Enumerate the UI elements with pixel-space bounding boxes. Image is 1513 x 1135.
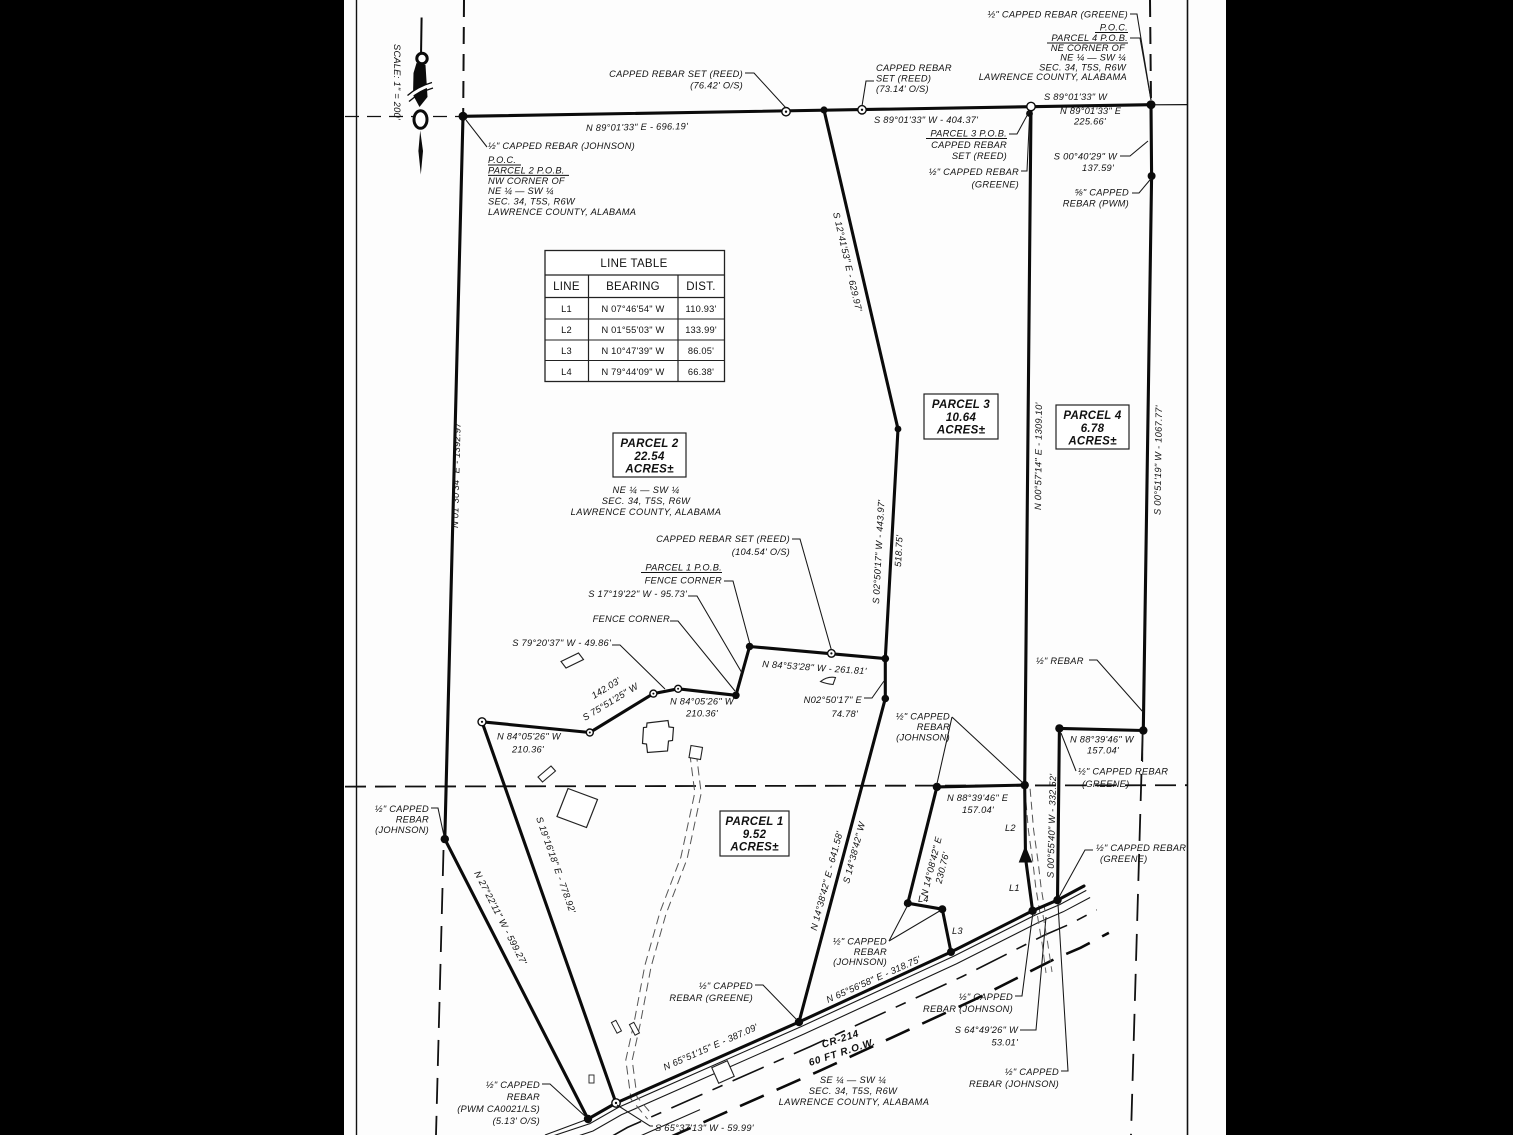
svg-text:½" CAPPED: ½" CAPPED [833,937,887,947]
svg-text:N 89°01'33" E: N 89°01'33" E [1060,106,1122,116]
svg-text:(GREENE): (GREENE) [1082,779,1129,789]
svg-text:137.59': 137.59' [1082,163,1115,173]
svg-text:CAPPED REBAR: CAPPED REBAR [931,140,1007,150]
svg-text:NE ¼ — SW ¼: NE ¼ — SW ¼ [488,186,554,196]
svg-text:½" CAPPED REBAR: ½" CAPPED REBAR [929,167,1019,177]
svg-text:10.64: 10.64 [946,412,977,424]
svg-text:DIST.: DIST. [686,281,716,293]
svg-text:CAPPED REBAR SET (REED): CAPPED REBAR SET (REED) [609,69,743,79]
svg-text:PARCEL 2: PARCEL 2 [620,438,679,450]
svg-text:157.04': 157.04' [1087,746,1120,756]
svg-text:½" CAPPED: ½" CAPPED [896,712,950,722]
svg-text:REBAR (JOHNSON): REBAR (JOHNSON) [969,1079,1059,1089]
svg-text:225.66': 225.66' [1073,117,1107,127]
svg-text:PARCEL 4: PARCEL 4 [1063,410,1122,422]
svg-text:(5.13' O/S): (5.13' O/S) [493,1116,540,1126]
svg-text:½" CAPPED: ½" CAPPED [699,981,753,991]
svg-text:L3: L3 [561,346,572,356]
svg-text:LAWRENCE COUNTY, ALABAMA: LAWRENCE COUNTY, ALABAMA [979,72,1127,82]
svg-text:S 79°20'37" W - 49.86': S 79°20'37" W - 49.86' [512,638,612,648]
svg-text:66.38': 66.38' [688,367,714,377]
svg-text:L2: L2 [561,325,572,335]
svg-text:REBAR: REBAR [917,722,950,732]
svg-text:86.05': 86.05' [688,346,714,356]
svg-text:N 88°39'46" W: N 88°39'46" W [1070,735,1135,745]
svg-text:(73.14' O/S): (73.14' O/S) [876,84,929,94]
svg-text:(PWM CA0021/LS): (PWM CA0021/LS) [457,1104,540,1114]
svg-text:LAWRENCE COUNTY, ALABAMA: LAWRENCE COUNTY, ALABAMA [488,207,636,217]
svg-text:REBAR (JOHNSON): REBAR (JOHNSON) [923,1004,1013,1014]
svg-text:N 88°39'46" E: N 88°39'46" E [947,793,1009,803]
svg-text:REBAR: REBAR [396,815,429,825]
svg-text:L3: L3 [952,926,963,936]
svg-text:NE CORNER OF: NE CORNER OF [1051,43,1126,53]
svg-text:(JOHNSON): (JOHNSON) [375,825,429,835]
svg-text:PARCEL 3 P.O.B.: PARCEL 3 P.O.B. [930,129,1007,139]
svg-text:(GREENE): (GREENE) [1100,854,1147,864]
svg-text:53.01': 53.01' [991,1038,1019,1048]
svg-text:133.99': 133.99' [685,325,717,335]
svg-text:S 65°37'13" W - 59.99': S 65°37'13" W - 59.99' [655,1123,755,1133]
svg-text:L1: L1 [561,304,572,314]
svg-text:PARCEL 2 P.O.B.: PARCEL 2 P.O.B. [488,165,565,175]
svg-text:CAPPED REBAR SET (REED): CAPPED REBAR SET (REED) [656,534,790,544]
svg-text:110.93': 110.93' [686,304,717,314]
svg-text:REBAR: REBAR [507,1092,540,1102]
svg-text:N 00°57'14" E - 1309.10': N 00°57'14" E - 1309.10' [1033,401,1044,510]
svg-text:PARCEL 1 P.O.B.: PARCEL 1 P.O.B. [645,563,722,573]
svg-text:½" CAPPED: ½" CAPPED [375,804,429,814]
svg-text:N 10°47'39" W: N 10°47'39" W [601,346,664,356]
svg-text:ACRES±: ACRES± [624,464,674,476]
svg-text:S 89°01'33" W: S 89°01'33" W [1044,92,1108,102]
svg-text:½" CAPPED: ½" CAPPED [1005,1067,1059,1077]
svg-text:NW CORNER OF: NW CORNER OF [488,176,566,186]
svg-text:PARCEL 4 P.O.B.: PARCEL 4 P.O.B. [1051,33,1128,43]
svg-text:SEC. 34, T5S, R6W: SEC. 34, T5S, R6W [809,1086,898,1096]
svg-text:N 89°01'33" E - 696.19': N 89°01'33" E - 696.19' [586,121,689,133]
svg-text:SET (REED): SET (REED) [952,151,1007,161]
svg-text:LINE: LINE [553,281,580,293]
svg-text:S 00°51'19" W - 1067.77': S 00°51'19" W - 1067.77' [1153,404,1165,515]
svg-text:ACRES±: ACRES± [729,842,779,854]
svg-text:LINE TABLE: LINE TABLE [600,258,667,270]
svg-text:N 01°55'03" W: N 01°55'03" W [601,325,664,335]
svg-text:BEARING: BEARING [606,281,660,293]
svg-text:FENCE CORNER: FENCE CORNER [593,614,670,624]
svg-text:74.78': 74.78' [831,709,859,719]
svg-text:S 64°49'26" W: S 64°49'26" W [955,1025,1019,1035]
svg-text:6.78: 6.78 [1081,423,1105,435]
svg-text:L4: L4 [918,894,929,904]
svg-text:SE ¼ — SW ¼: SE ¼ — SW ¼ [820,1075,886,1085]
svg-text:½" CAPPED REBAR (JOHNSON): ½" CAPPED REBAR (JOHNSON) [488,141,635,151]
svg-text:SEC. 34, T5S, R6W: SEC. 34, T5S, R6W [1039,62,1127,72]
svg-text:½" CAPPED REBAR (GREENE): ½" CAPPED REBAR (GREENE) [987,10,1128,20]
svg-text:LAWRENCE COUNTY, ALABAMA: LAWRENCE COUNTY, ALABAMA [571,507,722,517]
svg-text:NE ¼ — SW ¼: NE ¼ — SW ¼ [1060,53,1126,63]
svg-text:518.75': 518.75' [893,534,905,567]
svg-text:ACRES±: ACRES± [1067,436,1117,448]
svg-text:CAPPED REBAR: CAPPED REBAR [876,63,952,73]
svg-text:L2: L2 [1005,823,1016,833]
svg-text:S 17°19'22" W - 95.73': S 17°19'22" W - 95.73' [588,589,688,599]
svg-text:(GREENE): (GREENE) [972,180,1019,190]
svg-text:(104.54' O/S): (104.54' O/S) [732,547,790,557]
svg-text:S 00°40'29" W: S 00°40'29" W [1054,152,1118,162]
svg-text:REBAR (GREENE): REBAR (GREENE) [669,993,753,1003]
svg-text:½" CAPPED: ½" CAPPED [486,1080,540,1090]
svg-text:LAWRENCE COUNTY, ALABAMA: LAWRENCE COUNTY, ALABAMA [779,1097,930,1107]
svg-text:N 79°44'09" W: N 79°44'09" W [601,367,664,377]
svg-text:½" REBAR: ½" REBAR [1036,656,1084,666]
svg-text:P.O.C.: P.O.C. [1100,23,1128,33]
svg-text:N 84°05'26" W: N 84°05'26" W [670,697,735,707]
svg-text:REBAR: REBAR [854,947,887,957]
svg-text:S 89°01'33" W - 404.37': S 89°01'33" W - 404.37' [874,115,979,125]
svg-text:SEC. 34, T5S, R6W: SEC. 34, T5S, R6W [602,496,691,506]
svg-text:½" CAPPED REBAR: ½" CAPPED REBAR [1096,843,1186,853]
svg-text:FENCE CORNER: FENCE CORNER [645,576,722,586]
svg-text:L4: L4 [561,367,572,377]
svg-text:P.O.C.: P.O.C. [488,155,516,165]
svg-text:9.52: 9.52 [743,829,767,841]
svg-text:210.36': 210.36' [511,745,545,755]
svg-text:N 84°05'26" W: N 84°05'26" W [497,732,562,742]
svg-text:(76.42' O/S): (76.42' O/S) [690,81,743,91]
svg-text:PARCEL 3: PARCEL 3 [932,399,991,411]
svg-text:SET (REED): SET (REED) [876,74,931,84]
svg-text:½" CAPPED: ½" CAPPED [959,992,1013,1002]
svg-text:SEC. 34, T5S, R6W: SEC. 34, T5S, R6W [488,197,576,207]
svg-text:NE ¼ — SW ¼: NE ¼ — SW ¼ [613,485,680,495]
svg-text:½" CAPPED REBAR: ½" CAPPED REBAR [1078,767,1168,777]
svg-text:N02°50'17" E: N02°50'17" E [804,695,863,705]
svg-text:22.54: 22.54 [633,451,665,463]
svg-text:210.36': 210.36' [685,709,719,719]
svg-text:ACRES±: ACRES± [936,425,986,437]
svg-text:REBAR (PWM): REBAR (PWM) [1063,199,1129,209]
svg-text:(JOHNSON): (JOHNSON) [896,733,950,743]
svg-text:(JOHNSON): (JOHNSON) [833,957,887,967]
svg-text:SCALE: 1" = 200': SCALE: 1" = 200' [392,44,402,121]
svg-text:L1: L1 [1009,883,1020,893]
svg-text:157.04': 157.04' [962,805,995,815]
svg-text:⅝" CAPPED: ⅝" CAPPED [1075,188,1129,198]
svg-text:N 07°46'54" W: N 07°46'54" W [601,304,664,314]
svg-text:PARCEL 1: PARCEL 1 [725,816,783,828]
